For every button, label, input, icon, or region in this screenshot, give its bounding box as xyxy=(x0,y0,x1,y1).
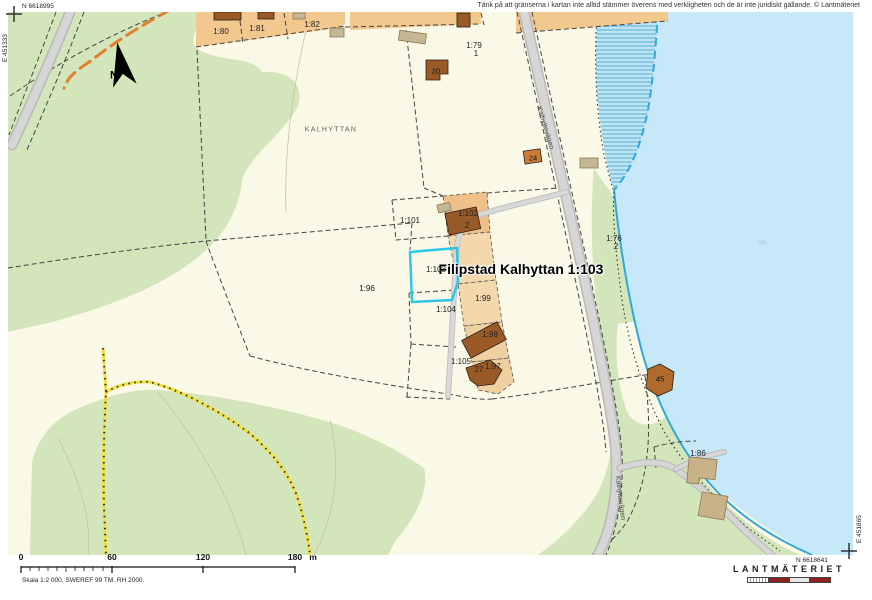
coordinate-nw-northing: N 6618995 xyxy=(22,3,54,10)
scale-tick-0: 0 xyxy=(19,552,24,562)
coordinate-nw-easting: E 451333 xyxy=(2,34,9,62)
cadastral-map xyxy=(0,0,872,600)
building-24 xyxy=(523,149,542,164)
lantmateriet-logo: LANTMÄTERIET xyxy=(733,564,845,574)
lantmateriet-logo-bar-icon xyxy=(747,577,831,583)
coordinate-se-easting: E 451865 xyxy=(856,515,863,543)
scale-tick-60: 60 xyxy=(107,552,116,562)
scale-tick-120: 120 xyxy=(196,552,210,562)
scale-caption: Skala 1:2 000. SWEREF 99 TM. RH 2000. xyxy=(22,577,144,584)
scale-bar xyxy=(21,566,295,573)
map-viewport[interactable]: KALHYTTANFilipstad Kalhyttan 1:1031:801:… xyxy=(0,0,872,600)
coordinate-se-northing: N 6618641 xyxy=(796,557,828,564)
scale-tick-180: 180 xyxy=(288,552,302,562)
map-disclaimer: Tänk på att gränserna i kartan inte allt… xyxy=(477,2,860,9)
building-1-86b xyxy=(698,492,728,520)
scale-unit: m xyxy=(309,552,317,562)
